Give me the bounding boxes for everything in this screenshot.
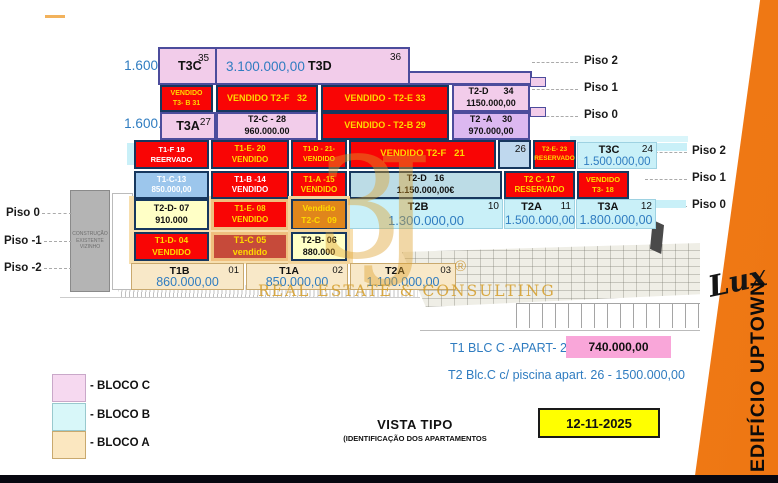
floor-label-right-lower-0: Piso 0 [692,199,726,211]
unit-price: 1.500.000,00 [505,213,574,227]
unit-id: T3A [176,118,200,134]
base-line [420,330,700,331]
date-value: 12-11-2025 [566,416,632,431]
unit-t2a30: T2 -A 30 970.000,00 [452,112,530,140]
unit-t3a27: T3A 27 [160,112,216,140]
unit-t2c28: T2-C - 28 960.000.00 [216,112,318,140]
ground-line [60,297,420,298]
unit-status: VENDIDO [301,185,337,195]
unit-id: T1-C-13 [157,175,186,185]
unit-id: T3C [578,144,640,156]
floor-label-right-upper-2: Piso 2 [584,55,618,67]
note-price-box: 740.000,00 [566,336,671,358]
unit-t2d16: T2-D 16 1.150.000,00€ [349,171,502,199]
unit-t3d-price: 3.100.000,00 [226,59,305,74]
decorative-dash [45,15,65,18]
unit-t1d21: T1-D - 21- VENDIDO [291,140,347,169]
unit-status: VENDIDO [232,155,268,165]
railing-ticks [516,303,700,328]
unit-price: 1.100.000,00 [351,275,455,289]
roof-step [408,71,532,85]
unit-t2f32: VENDIDO T2-F 32 [216,85,318,112]
unit-status: RESERVADO [534,155,575,163]
unit-id: T1-D- 04 [155,235,189,246]
unit-status: VENDIDO - T2-B 29 [344,120,426,132]
unit-status: VENDIDO - T2-E 33 [344,93,425,105]
sidebar-building-name: EDIFÍCIO UPTOWN [747,292,770,472]
unit-t1a15: T1-A -15 VENDIDO [291,171,347,199]
unit-id: T1-E- 08 [234,204,265,214]
unit-price: 1.500.000,00 [578,156,656,168]
caption-subtitle: (IDENTIFICAÇÃO DOS APARTAMENTOS [325,434,505,443]
unit-status: VENDIDO T2-F 32 [227,93,307,105]
unit-id: T2 C- 17 [524,175,555,185]
unit-status: REERVADO [151,155,193,165]
unit-t1d04: T1-D- 04 VENDIDO [134,232,209,261]
elevation-diagram: CONSTRUÇÃO EXISTENTE VIZINHO 1.600.000,0… [0,0,778,483]
unit-number: 24 [642,144,653,155]
unit-t2b10: T2B 10 1.300.000,00 [349,199,503,229]
unit-id: T2-C 09 [301,215,336,226]
neighbor-building-label: CONSTRUÇÃO EXISTENTE VIZINHO [72,231,108,251]
unit-id: T2-D- 07 [154,203,190,215]
unit-status: VENDIDO [152,247,191,258]
floor-dash [44,241,72,242]
unit-t3a12: T3A 12 1.800.000,00 [576,199,656,229]
unit-t2a11: T2A 11 1.500.000,00 [504,199,575,229]
unit-t2d34: T2-D 34 1150.000,00 [452,84,530,112]
unit-t3c24: T3C 24 1.500.000,00 [577,142,657,169]
unit-t2f21: VENDIDO T2-F 21 [349,140,496,169]
unit-id: T1-D - 21- [303,145,335,154]
unit-t318: VENDIDO T3- 18 [577,171,629,199]
unit-status: VENDIDO T2-F 21 [380,148,464,160]
unit-status: Vendido [302,203,335,214]
unit-t2c09: Vendido T2-C 09 [291,199,347,230]
unit-price: 1.300.000,00 [350,213,502,228]
unit-price: 860.000,00 [132,275,243,289]
unit-id: T3- 18 [592,185,614,195]
unit-t2e23: T2-E- 23 RESERVADO [533,140,576,169]
note-t2-blc-c: T2 Blc.C c/ piscina apart. 26 - 1500.000… [448,368,685,382]
unit-t2c17: T2 C- 17 RESERVADO [504,171,575,199]
unit-number: 26 [515,143,526,156]
unit-status: VENDIDO [232,215,268,225]
unit-id: T1-C 05 [234,235,267,247]
unit-t3d-label: T3D [308,59,332,73]
neighbor-building: CONSTRUÇÃO EXISTENTE VIZINHO [70,190,110,292]
unit-t3c-number: 35 [198,53,209,64]
date-box: 12-11-2025 [538,408,660,438]
floor-label-right-upper-1: Piso 1 [584,82,618,94]
unit-id: T2-D 16 [407,173,445,185]
unit-id: T1-A -15 [303,175,334,185]
unit-26: 26 [498,140,531,169]
unit-id: T2-D 34 [468,86,513,98]
unit-t2e33: VENDIDO - T2-E 33 [321,85,449,112]
unit-status: VENDIDO [171,89,203,98]
unit-id: T2-E- 23 [542,146,567,154]
unit-status: VENDIDO [303,155,335,164]
unit-status: VENDIDO [232,185,268,195]
unit-status: vendido [233,247,268,259]
cyan-tail [657,143,687,151]
floor-label-right-lower-1: Piso 1 [692,172,726,184]
floor-dash [532,62,578,63]
unit-t1c05: T1-C 05 vendido [211,232,289,261]
unit-id: T2B [350,201,486,213]
floor-dash [42,213,72,214]
legend-swatch-bloco-a [52,431,86,459]
floor-label-left-0: Piso 0 [6,207,40,219]
unit-id: T2-C - 28 [248,114,286,126]
floor-label-left-1: Piso -1 [4,235,42,247]
unit-id: T1-B -14 [234,175,266,185]
unit-id: T2-B- 06 [301,235,337,247]
unit-price: 880.000 [303,247,336,259]
unit-number: 12 [641,201,652,212]
unit-divider [215,49,217,83]
floor-dash [44,268,72,269]
facade-tab [530,107,546,117]
unit-id: T1-E- 20 [234,144,265,154]
unit-t1a02: T1A 02 850.000,00 [246,263,348,290]
unit-number: 27 [200,116,211,129]
note-t1-blc-c: T1 BLC C -APART- 25- [450,341,578,355]
unit-id: T3- B 31 [173,99,200,108]
unit-id: T2 -A 30 [470,114,512,126]
unit-number: 11 [561,201,571,212]
bottom-bar [0,475,778,483]
unit-t1f19: T1-F 19 REERVADO [134,140,209,169]
legend-swatch-bloco-c [52,374,86,402]
unit-price: 970.000,00 [468,126,513,138]
note-price: 740.000,00 [588,340,648,354]
unit-price: 850.000,00 [151,185,191,195]
unit-price: 960.000.00 [244,126,289,138]
unit-id: T3A [577,201,639,213]
unit-t1b14: T1-B -14 VENDIDO [211,171,289,199]
unit-number: 10 [488,201,499,212]
unit-price: 850.000,00 [247,275,347,289]
unit-t1e08: T1-E- 08 VENDIDO [211,199,289,230]
unit-price: 1.150.000,00€ [397,185,455,197]
caption-title: VISTA TIPO [325,417,505,432]
floor-dash [532,89,578,90]
legend-label-bloco-b: - BLOCO B [90,409,150,421]
legend-swatch-bloco-b [52,403,86,431]
unit-t2d07: T2-D- 07 910.000 [134,199,209,230]
unit-t2a03: T2A 03 1.100.000,00 [350,263,456,290]
cyan-tail [656,200,686,208]
unit-t2b29: VENDIDO - T2-B 29 [321,112,449,140]
unit-price: 1150.000,00 [466,98,516,110]
facade-tab [530,77,546,87]
unit-status: RESERVADO [515,185,565,195]
unit-t3b31: VENDIDO T3- B 31 [160,85,213,112]
unit-t1c13: T1-C-13 850.000,00 [134,171,209,199]
unit-t3d-number: 36 [390,52,401,63]
floor-label-right-upper-0: Piso 0 [584,109,618,121]
unit-id: T1-F 19 [158,145,184,155]
unit-t1e20: T1-E- 20 VENDIDO [211,140,289,169]
floor-dash [645,179,687,180]
unit-t1b01: T1B 01 860.000,00 [131,263,244,290]
unit-price: 910.000 [155,215,188,227]
floor-label-left-2: Piso -2 [4,262,42,274]
unit-id: T2A [505,201,558,213]
floor-label-right-lower-2: Piso 2 [692,145,726,157]
unit-status: VENDIDO [586,175,620,185]
unit-t3c-t3d: T3C 35 3.100.000,00 T3D 36 [158,47,410,85]
unit-price: 1.800.000,00 [577,213,655,227]
legend-label-bloco-a: - BLOCO A [90,437,150,449]
caption: VISTA TIPO (IDENTIFICAÇÃO DOS APARTAMENT… [325,417,505,443]
legend-label-bloco-c: - BLOCO C [90,380,150,392]
unit-t2b06: T2-B- 06 880.000 [291,232,347,261]
